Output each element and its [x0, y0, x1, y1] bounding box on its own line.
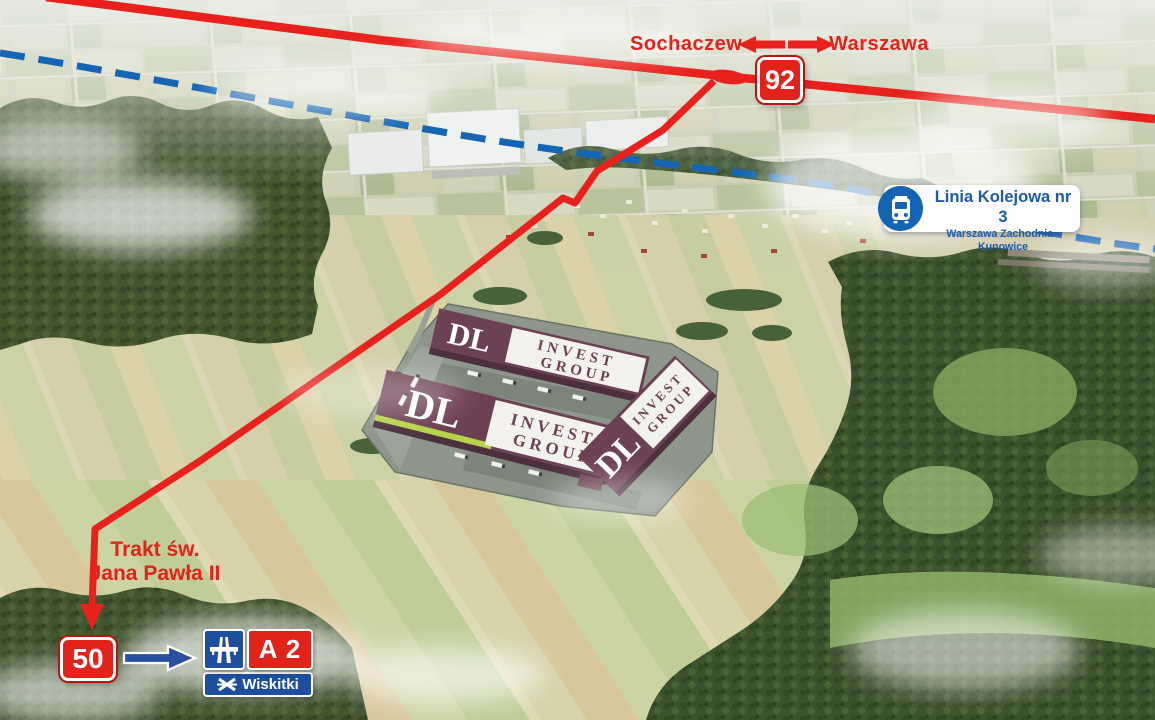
railway-info-box: Linia Kolejowa nr 3 Warszawa Zachodnia -… — [884, 185, 1080, 232]
direction-east-label: Warszawa — [829, 33, 929, 56]
motorway-exit-sign: A 2 Wiskitki — [203, 629, 313, 697]
arrow-west-icon — [738, 36, 785, 53]
motorway-exit-row: Wiskitki — [203, 672, 313, 697]
route-50-badge: 50 — [60, 637, 116, 681]
train-icon — [878, 186, 923, 231]
motorway-exit-label: Wiskitki — [242, 676, 299, 693]
railway-title: Linia Kolejowa nr 3 — [928, 188, 1078, 228]
terrain-layer: DL INVEST GROUP DL INVEST GROUP DL IN — [0, 0, 1155, 720]
motorway-icon — [203, 629, 245, 670]
railway-info-texts: Linia Kolejowa nr 3 Warszawa Zachodnia -… — [928, 188, 1078, 255]
direction-west-label: Sochaczew — [630, 33, 742, 56]
railway-subtitle: Warszawa Zachodnia - Kunowice — [928, 228, 1078, 256]
interchange-icon — [217, 677, 237, 692]
route-92-badge: 92 — [757, 57, 803, 103]
street-name-label: Trakt św. Jana Pawła II — [70, 538, 240, 586]
motorway-code-badge: A 2 — [247, 629, 313, 670]
arrow-east-icon — [788, 36, 835, 53]
aerial-location-map: DL INVEST GROUP DL INVEST GROUP DL IN — [0, 0, 1155, 720]
street-name-line2: Jana Pawła II — [70, 562, 240, 586]
blue-arrow-icon — [122, 644, 198, 672]
motorway-sign-top-row: A 2 — [203, 629, 313, 670]
street-name-line1: Trakt św. — [70, 538, 240, 562]
